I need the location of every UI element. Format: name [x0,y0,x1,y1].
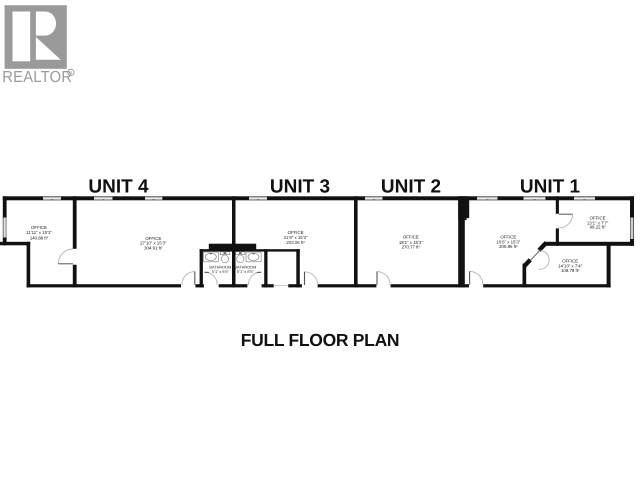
svg-text:5’1” x 6’5”: 5’1” x 6’5” [237,270,255,274]
svg-text:108.78 ft²: 108.78 ft² [561,268,580,273]
svg-text:UNIT 1: UNIT 1 [520,177,581,198]
svg-text:UNIT 3: UNIT 3 [270,177,330,198]
svg-text:OFFICE: OFFICE [403,235,419,240]
svg-text:UNIT 4: UNIT 4 [88,177,149,198]
svg-text:270.77 ft²: 270.77 ft² [402,245,421,250]
svg-text:UNIT 2: UNIT 2 [381,177,441,198]
svg-text:99.22 ft²: 99.22 ft² [590,225,606,230]
svg-text:203.06 ft²: 203.06 ft² [286,240,305,245]
svg-text:REALTOR: REALTOR [2,69,72,86]
svg-text:FULL FLOOR PLAN: FULL FLOOR PLAN [241,330,400,350]
svg-text:304.91 ft²: 304.91 ft² [144,246,163,251]
svg-text:205.86 ft²: 205.86 ft² [499,244,518,249]
svg-text:140.88 ft²: 140.88 ft² [30,236,49,241]
svg-text:11’11” x 15’3”: 11’11” x 15’3” [26,230,52,235]
svg-text:5’1” x 6’5”: 5’1” x 6’5” [212,270,230,274]
